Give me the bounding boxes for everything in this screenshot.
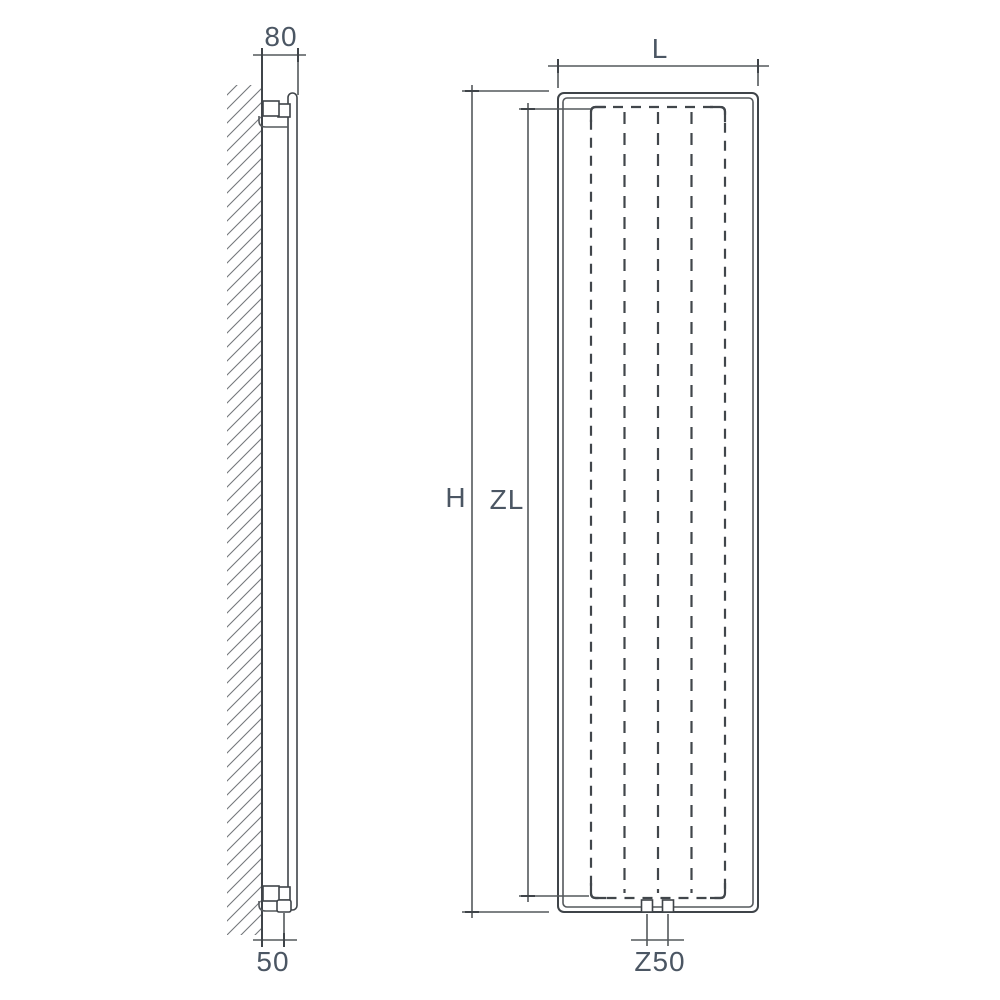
pipe-connection-left bbox=[642, 900, 653, 912]
bracket-block-bottom bbox=[263, 886, 279, 901]
wall-hatching bbox=[227, 85, 261, 935]
drawing-svg: 80 50 bbox=[0, 0, 1000, 1000]
pipe-connections bbox=[642, 900, 674, 912]
dimension-Z50: Z50 bbox=[631, 914, 686, 977]
dimension-label-ZL: ZL bbox=[490, 484, 525, 515]
bracket-block-top bbox=[263, 101, 279, 116]
fin-corner-bottom-left bbox=[591, 883, 606, 898]
fin-corner-top-left bbox=[591, 107, 606, 122]
mounting-bracket-bottom bbox=[259, 886, 291, 912]
radiator-panel-side-profile bbox=[288, 93, 297, 910]
radiator-dimension-drawing: 80 50 bbox=[0, 0, 1000, 1000]
side-view: 80 50 bbox=[227, 21, 306, 977]
pipe-connection-right bbox=[663, 900, 674, 912]
pipe-stub-side bbox=[277, 900, 291, 912]
dimension-label-80: 80 bbox=[264, 21, 297, 52]
radiator-fins-dashed bbox=[591, 107, 725, 898]
dimension-L: L bbox=[548, 33, 769, 88]
dimension-80: 80 bbox=[253, 21, 306, 95]
dimension-label-50: 50 bbox=[256, 946, 289, 977]
mounting-bracket-top bbox=[259, 101, 290, 127]
dimension-label-L: L bbox=[652, 33, 669, 64]
front-view: L H ZL bbox=[445, 33, 769, 977]
fin-corner-top-right bbox=[710, 107, 725, 122]
dimension-label-H: H bbox=[445, 482, 466, 513]
fin-corner-bottom-right bbox=[710, 883, 725, 898]
dimension-label-Z50: Z50 bbox=[634, 946, 685, 977]
dimension-ZL: ZL bbox=[490, 103, 591, 902]
